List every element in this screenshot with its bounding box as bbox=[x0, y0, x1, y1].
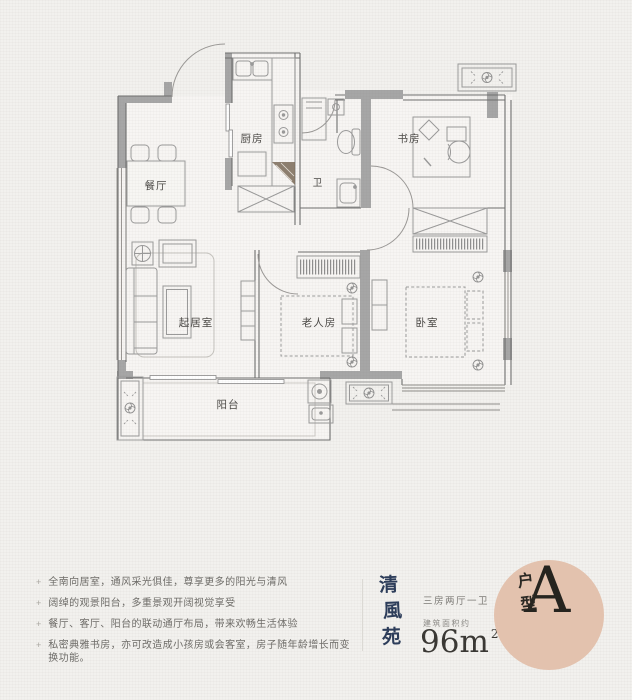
room-label-bath: 卫 bbox=[313, 178, 324, 189]
unit-type-badge: A 户 型 bbox=[494, 560, 604, 670]
room-label-elder: 老人房 bbox=[302, 316, 337, 329]
area-number: 96m bbox=[420, 624, 489, 660]
floor-plan-page: 餐厅 厨房 卫 书房 起居室 老人房 卧室 阳台 + 全南向居室，通风采光俱佳，… bbox=[0, 0, 632, 700]
room-label-dining: 餐厅 bbox=[145, 179, 168, 192]
room-label-study: 书房 bbox=[398, 132, 421, 145]
feature-text: 全南向居室，通风采光俱佳，尊享更多的阳光与清风 bbox=[48, 576, 287, 589]
feature-item: + 私密典雅书房，亦可改造成小孩房或会客室，房子随年龄增长而变换功能。 bbox=[36, 639, 356, 665]
unit-type-label-char: 户 bbox=[516, 568, 535, 593]
project-name-char: 清 bbox=[379, 572, 402, 599]
project-name-char: 苑 bbox=[381, 624, 403, 651]
unit-type-label-char: 型 bbox=[519, 591, 538, 616]
room-label-balcony: 阳台 bbox=[217, 398, 240, 411]
vertical-divider bbox=[362, 579, 363, 651]
room-label-living: 起居室 bbox=[179, 316, 214, 329]
feature-item: + 餐厅、客厅、阳台的联动通厅布局，带来欢畅生活体验 bbox=[36, 618, 356, 631]
project-name: 清 風 苑 bbox=[379, 572, 404, 651]
feature-item: + 全南向居室，通风采光俱佳，尊享更多的阳光与清风 bbox=[36, 576, 356, 589]
bullet-icon: + bbox=[36, 618, 41, 631]
entry-door-arc bbox=[172, 44, 225, 97]
ac-outdoor-unit-icon bbox=[346, 382, 392, 404]
area-value: 96m2 bbox=[420, 624, 496, 660]
feature-list: + 全南向居室，通风采光俱佳，尊享更多的阳光与清风 + 阔绰的观景阳台，多重景观… bbox=[36, 576, 356, 673]
bullet-icon: + bbox=[36, 639, 41, 652]
room-label-bedroom: 卧室 bbox=[416, 316, 439, 329]
feature-text: 私密典雅书房，亦可改造成小孩房或会客室，房子随年龄增长而变换功能。 bbox=[48, 639, 356, 665]
bullet-icon: + bbox=[36, 597, 41, 610]
room-label-kitchen: 厨房 bbox=[241, 132, 264, 145]
feature-item: + 阔绰的观景阳台，多重景观开阔视觉享受 bbox=[36, 597, 356, 610]
layout-description: 三房两厅一卫 bbox=[423, 593, 489, 607]
floor-plan: 餐厅 厨房 卫 书房 起居室 老人房 卧室 阳台 bbox=[0, 0, 632, 530]
feature-text: 阔绰的观景阳台，多重景观开阔视觉享受 bbox=[48, 597, 235, 610]
ac-outdoor-unit-icon bbox=[458, 64, 516, 91]
bullet-icon: + bbox=[36, 576, 41, 589]
feature-text: 餐厅、客厅、阳台的联动通厅布局，带来欢畅生活体验 bbox=[48, 618, 298, 631]
project-name-char: 風 bbox=[383, 598, 403, 625]
